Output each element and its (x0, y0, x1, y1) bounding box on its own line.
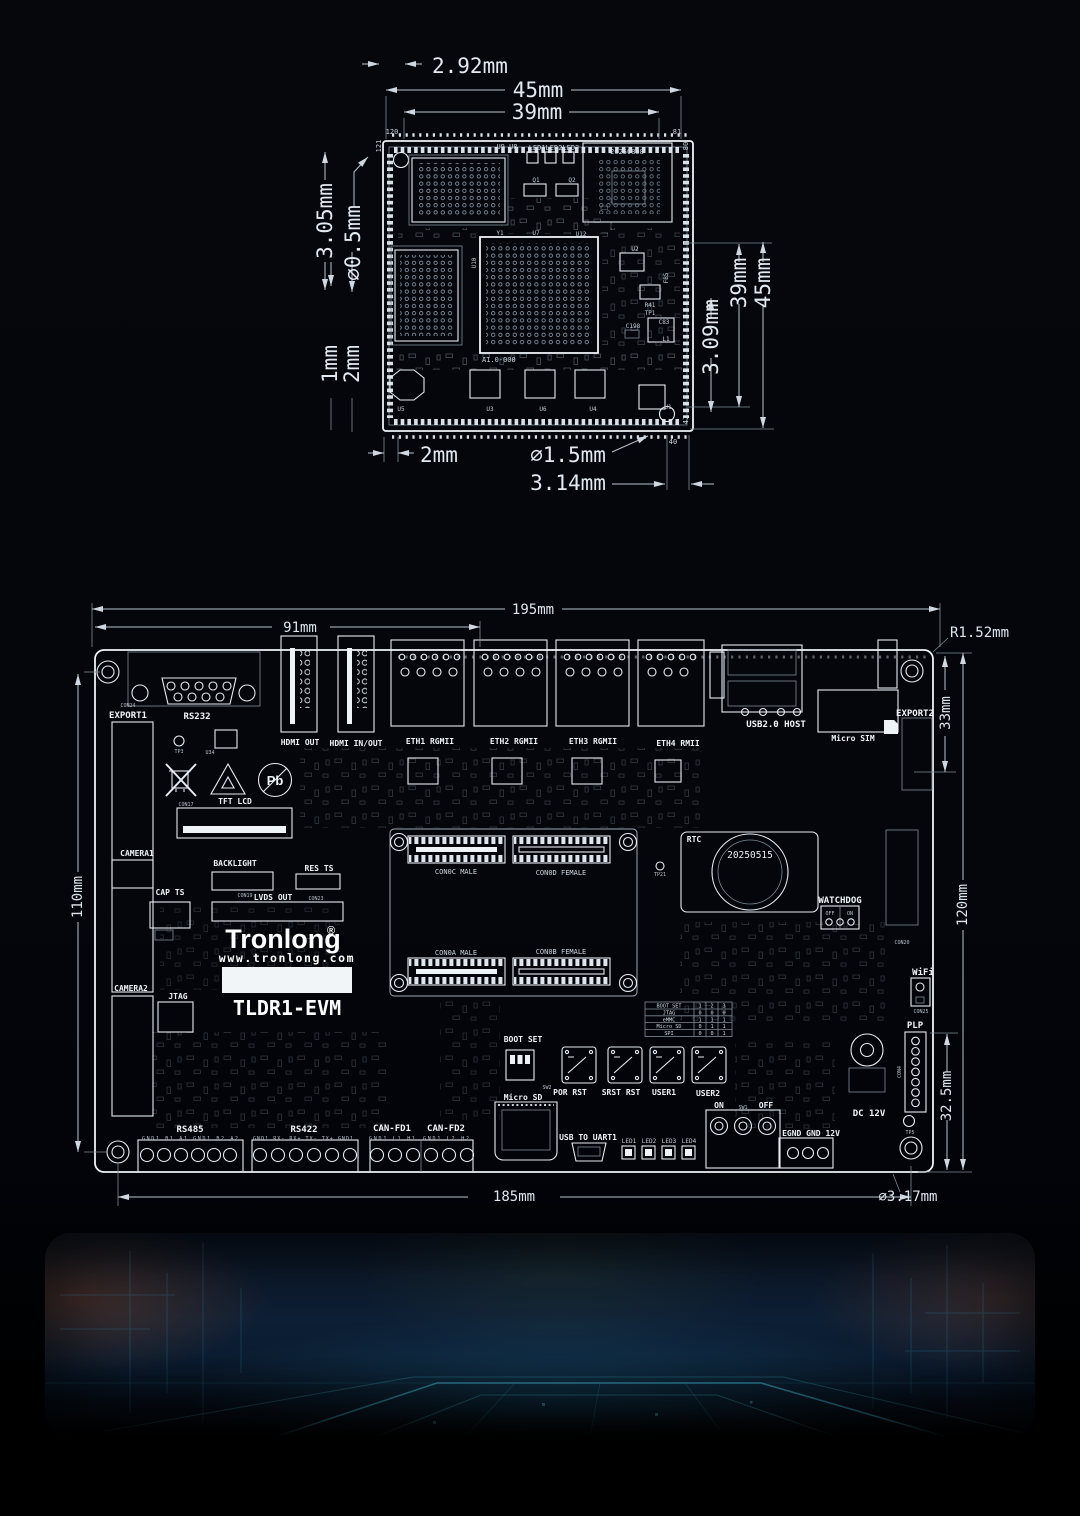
pin-121: 121 (375, 140, 383, 153)
boot-row-spi-2: 0 (710, 1031, 713, 1037)
silk-fb5: FB5 (663, 272, 670, 283)
label-plp: PLP (907, 1021, 924, 1031)
label-watchdog-off: OFF (825, 911, 834, 917)
dim-board-corner-radius: R1.52mm (950, 625, 1009, 641)
led2-led (642, 1146, 655, 1159)
dim-board-width-total: 195mm (512, 602, 554, 618)
pin-120: 120 (386, 128, 399, 136)
label-con0d: CON0D FEMALE (536, 869, 587, 877)
boot-row-emmc-1: 1 (698, 1017, 701, 1023)
dim-module-height-inner: 39mm (727, 258, 751, 309)
silk-q1: Q1 (532, 177, 540, 184)
boot-set-switch (506, 1050, 534, 1080)
som-module-drawing: U9 U8 LED1LED2LED3 20250808 Q1 Q2 Y1 U7 … (313, 54, 775, 495)
weee-icon (166, 764, 196, 796)
boot-row-spi-1: 0 (698, 1031, 701, 1037)
label-on: ON (714, 1101, 724, 1110)
con0c-connector (408, 836, 505, 863)
brand-website: www.tronlong.com (219, 951, 355, 965)
label-lvds-out: LVDS OUT (254, 893, 293, 902)
pb-free-icon: Pb (259, 764, 292, 797)
usb-uart-connector (572, 1143, 606, 1161)
label-led4: LED4 (682, 1138, 697, 1145)
esd-icon (211, 764, 245, 794)
silk-u7: U7 (532, 230, 540, 237)
rtc-battery (681, 832, 818, 912)
silk-c83: C83 (659, 319, 670, 326)
label-watchdog: WATCHDOG (818, 896, 861, 906)
boot-table-header-3: 3 (722, 1004, 725, 1010)
boot-table-header-1: 1 (698, 1004, 701, 1010)
label-boot-set: BOOT SET (504, 1035, 543, 1044)
boot-row-jtag-1: 0 (698, 1011, 701, 1017)
dim-module-bottom-offset: 3.14mm (530, 471, 606, 495)
label-hdmi-inout: HDMI IN/OUT (330, 739, 383, 748)
silk-y1: Y1 (496, 230, 504, 237)
label-con20: CON20 (894, 940, 909, 946)
u34-chip (215, 730, 237, 748)
camera1-header (112, 860, 153, 992)
label-egnd: EGND GND 12V (782, 1129, 840, 1138)
tp3-testpoint (174, 736, 184, 746)
label-tp21: TP21 (654, 872, 666, 878)
label-rs485: RS485 (176, 1125, 203, 1135)
module-hole-topleft (394, 153, 409, 168)
label-u34: U34 (205, 750, 214, 756)
export1-header (112, 722, 153, 888)
con0b-connector (513, 958, 610, 985)
brand-logo: Tronlong (225, 924, 340, 954)
label-con23: CON23 (308, 896, 323, 902)
label-sw2: SW2 (542, 1085, 551, 1091)
dim-module-height-outer: 45mm (751, 258, 775, 309)
plp-connector (905, 1032, 926, 1112)
micro-sim-slot (818, 640, 898, 734)
por-rst-button (562, 1047, 596, 1083)
pb-icon-text: Pb (267, 773, 284, 788)
dim-module-width-inner: 39mm (512, 100, 563, 124)
label-user2: USER2 (696, 1089, 720, 1098)
board-model-name: TLDR1-EVM (233, 996, 341, 1020)
label-led1: LED1 (622, 1138, 637, 1145)
silk-u1: U1 (664, 404, 672, 411)
wifi-connector (911, 978, 930, 1006)
label-sw1: SW1 (738, 1105, 747, 1111)
silk-u4: U4 (589, 406, 597, 413)
pins-canfd2: GND1 L2 H2 (423, 1136, 469, 1142)
silk-q2: Q2 (568, 177, 576, 184)
dim-board-height-top: 33mm (938, 696, 954, 730)
silk-u10: U10 (471, 257, 478, 268)
boot-row-emmc-3: 1 (722, 1017, 725, 1023)
label-con0a: CON0A MALE (435, 949, 477, 957)
boot-row-sd-1: 0 (698, 1024, 701, 1030)
label-eth4: ETH4 RMII (656, 739, 700, 748)
boot-row-sd: Micro SD (657, 1024, 682, 1030)
silk-u2: U2 (631, 246, 639, 253)
label-camera2: CAMERA2 (114, 984, 148, 993)
dim-board-width-left: 91mm (283, 620, 317, 636)
label-jtag: JTAG (168, 992, 187, 1001)
boot-row-sd-2: 1 (710, 1024, 713, 1030)
silk-u3: U3 (486, 406, 494, 413)
label-rtc: RTC (687, 835, 702, 844)
label-backlight: BACKLIGHT (213, 859, 257, 868)
pin-80: 80 (682, 142, 690, 150)
label-hdmi-out: HDMI OUT (281, 738, 320, 747)
label-export2: EXPORT2 (896, 709, 934, 719)
dim-module-right-pitch: 3.09mm (699, 299, 723, 375)
boot-row-sd-3: 1 (722, 1024, 725, 1030)
boot-row-jtag: JTAG (663, 1011, 676, 1017)
boot-row-emmc: eMMC (663, 1017, 676, 1023)
rs232-connector (128, 652, 260, 706)
srst-rst-button (608, 1047, 642, 1083)
led3-led (662, 1146, 675, 1159)
canfd-terminal (370, 1140, 474, 1172)
boot-row-emmc-2: 1 (710, 1017, 713, 1023)
label-led3: LED3 (662, 1138, 677, 1145)
boot-row-jtag-2: 0 (710, 1011, 713, 1017)
technical-drawing: U9 U8 LED1LED2LED3 20250808 Q1 Q2 Y1 U7 … (0, 0, 1080, 1516)
label-con17: CON17 (178, 802, 193, 808)
dim-module-2mm-left: 2mm (340, 345, 364, 383)
pins-canfd1: GND1 L1 H1 (369, 1136, 415, 1142)
boot-table-header-2: 2 (710, 1004, 713, 1010)
label-rs422: RS422 (290, 1125, 317, 1135)
label-wifi: WiFi (912, 967, 934, 978)
silk-r41: R41 (645, 302, 656, 309)
silk-date-code: 20250808 (610, 148, 644, 156)
dim-board-height-left: 110mm (70, 876, 86, 918)
export2-header (902, 718, 932, 790)
label-con0c: CON0C MALE (435, 868, 477, 876)
label-canfd2: CAN-FD2 (427, 1124, 465, 1134)
label-eth3: ETH3 RGMII (569, 737, 617, 746)
dim-board-height-right: 120mm (955, 884, 971, 926)
label-off: OFF (759, 1101, 774, 1110)
label-export1: EXPORT1 (109, 711, 147, 721)
label-micro-sd: Micro SD (504, 1092, 543, 1102)
led1-led (622, 1146, 635, 1159)
label-con24: CON24 (120, 703, 135, 709)
label-con25: CON25 (913, 1009, 928, 1015)
silk-c198: C198 (626, 323, 641, 330)
backlight-connector (212, 872, 273, 890)
jtag-header (158, 1002, 193, 1032)
product-dimension-page: U9 U8 LED1LED2LED3 20250808 Q1 Q2 Y1 U7 … (0, 0, 1080, 1516)
egnd-terminal (779, 1138, 833, 1168)
label-tft-lcd: TFT LCD (218, 797, 252, 806)
boot-row-jtag-3: 0 (722, 1011, 725, 1017)
dim-module-top-offset: 2.92mm (432, 54, 508, 78)
micro-sd-slot (495, 1102, 557, 1160)
label-user1: USER1 (652, 1088, 676, 1097)
dim-board-width-holes: 185mm (493, 1189, 535, 1205)
silk-l1: L1 (662, 336, 670, 343)
label-tp5: TP5 (905, 1130, 914, 1136)
dim-module-hole-mid: ⌀1.5mm (530, 443, 606, 467)
con0a-connector (408, 958, 505, 985)
boot-row-spi-3: 1 (722, 1031, 725, 1037)
tft-lcd-connector (177, 808, 292, 838)
res-ts-connector (296, 874, 340, 889)
label-watchdog-on: ON (847, 911, 853, 917)
pin-41: 41 (682, 416, 690, 424)
tp5-testpoint (904, 1116, 915, 1127)
label-usb-host: USB2.0 HOST (746, 720, 806, 730)
dim-module-left-pitch: 3.05mm (313, 183, 337, 259)
pins-rs422: GND1 RX- RX+ TX- TX+ GND1 (253, 1136, 353, 1142)
label-battery-date: 20250515 (727, 850, 773, 861)
dim-board-hole-dia: ⌀3.17mm (878, 1189, 937, 1205)
pins-rs485: GND1 B1 A1 GND1 B2 A2 (142, 1136, 238, 1142)
label-con19: CON19 (237, 893, 252, 899)
label-canfd1: CAN-FD1 (373, 1124, 411, 1134)
dim-module-1mm: 1mm (318, 345, 342, 383)
dim-module-width-outer: 45mm (513, 78, 564, 102)
label-res-ts: RES TS (305, 864, 334, 873)
label-rs232: RS232 (183, 712, 210, 722)
label-tp3: TP3 (174, 749, 183, 755)
silk-leds: LED1LED2LED3 (529, 144, 580, 152)
silk-u9u8: U9 U8 (496, 143, 517, 151)
dc-jack (849, 1034, 885, 1092)
label-srst-rst: SRST RST (602, 1088, 641, 1097)
label-por-rst: POR RST (553, 1088, 587, 1097)
con20-header (886, 830, 918, 925)
label-usb-uart: USB TO UART1 (559, 1133, 617, 1142)
label-dc12v: DC 12V (853, 1109, 886, 1119)
dim-module-hole-small: ⌀0.5mm (341, 205, 365, 281)
label-con4: CON4 (897, 1066, 903, 1078)
label-con0b: CON0B FEMALE (536, 948, 587, 956)
led4-led (682, 1146, 695, 1159)
label-eth2: ETH2 RGMII (490, 737, 538, 746)
brand-registered-mark: ® (327, 925, 335, 937)
rs485-terminal (138, 1140, 243, 1172)
evm-board-drawing: Pb (70, 602, 1009, 1206)
label-cap-ts: CAP TS (156, 888, 185, 897)
con0d-connector (513, 836, 610, 863)
label-camera1: CAMERA1 (120, 849, 154, 858)
boot-row-spi: SPI (664, 1031, 673, 1037)
camera2-header (112, 996, 153, 1116)
boot-table-header-name: BOOT SET (657, 1004, 682, 1010)
pin-40: 40 (669, 438, 677, 446)
silk-tp1: TP1 (645, 310, 656, 317)
label-micro-sim: Micro SIM (831, 733, 875, 743)
silk-u5: U5 (397, 406, 405, 413)
user1-button (650, 1047, 684, 1083)
user2-button (692, 1047, 726, 1083)
label-led2: LED2 (642, 1138, 657, 1145)
silk-u12: U12 (576, 231, 587, 238)
label-eth1: ETH1 RGMII (406, 737, 454, 746)
dim-module-2mm-bottom: 2mm (420, 443, 458, 467)
pin-81: 81 (673, 128, 681, 136)
silk-soc-rev: A1.0-000 (482, 356, 516, 364)
rs422-terminal (252, 1140, 358, 1172)
tp21-testpoint (656, 862, 664, 870)
silk-u6: U6 (539, 406, 547, 413)
blank-label-sticker (222, 967, 352, 993)
dim-board-height-bottom-right: 32.5mm (939, 1071, 955, 1122)
